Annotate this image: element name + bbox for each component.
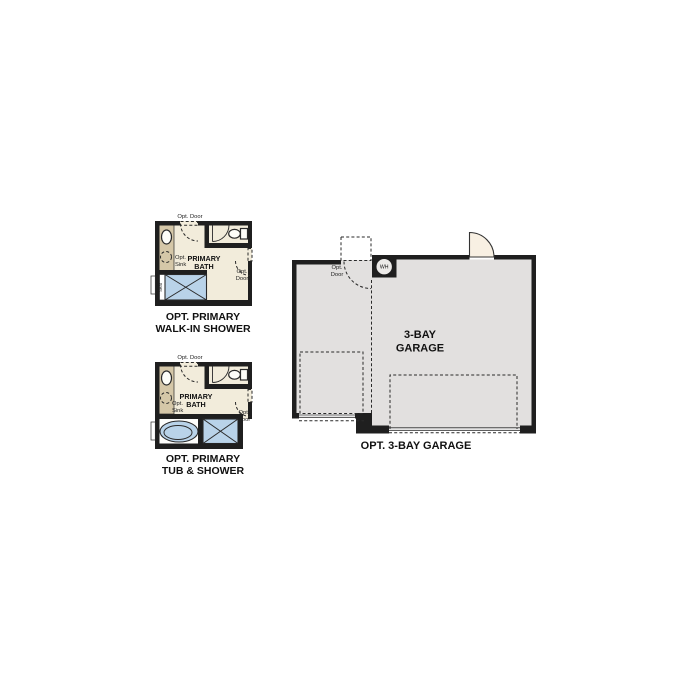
toilet-bowl-icon <box>229 370 241 379</box>
water-heater-label: WH <box>380 265 389 271</box>
opt-sink-label-line1: Opt. <box>172 401 183 407</box>
opt-door-right-label-line2: Door <box>238 417 251 423</box>
opt-sink-label-line2: Sink <box>172 408 183 414</box>
wall-niche <box>151 422 155 440</box>
optional-door-opening <box>341 237 371 261</box>
opt-door-right-label-line1: Opt. <box>239 410 250 416</box>
opt-door-label-line1: Opt. <box>332 265 343 271</box>
bay-garage-door <box>299 415 355 417</box>
plan-title: OPT. 3-BAY GARAGE <box>361 440 472 452</box>
wall-bay-bottom-left-stub <box>292 413 299 419</box>
wall-bay-top <box>292 260 341 265</box>
wall-right <box>532 255 537 434</box>
sink-icon <box>162 230 172 244</box>
opt-door-right-label-line2: Door <box>236 276 249 282</box>
opt-sink-label-line1: Opt. <box>175 255 186 261</box>
wall-left <box>155 221 160 306</box>
toilet-bowl-icon <box>229 229 241 238</box>
opt-door-right-label-line1: Opt. <box>237 269 248 275</box>
room-label-line1: 3-BAY <box>404 329 437 341</box>
opt-door-top-label: Opt. Door <box>177 355 202 361</box>
opt-sink-label-line2: Sink <box>175 262 186 268</box>
floor-plan-canvas: Opt. Door PRIMARY BATH Opt. Sink Opt. Do… <box>0 0 687 687</box>
wall-left <box>155 362 160 449</box>
room-label-line2: BATH <box>194 262 213 271</box>
entry-door-swing <box>470 233 495 258</box>
sink-icon <box>162 371 172 385</box>
plan-title-line1: OPT. PRIMARY <box>166 311 240 323</box>
seat-label: Seat <box>158 282 163 292</box>
wall-top-right <box>198 221 252 226</box>
wall-right-lower <box>248 261 252 306</box>
walk-in-shower-plan: Opt. Door PRIMARY BATH Opt. Sink Opt. Do… <box>148 206 260 338</box>
wall-bottom <box>155 444 243 450</box>
wall-main-bottom-left-stub <box>372 426 389 434</box>
tub-shower-plan: Opt. Door PRIMARY BATH Opt. Sink Opt. Do… <box>148 347 260 484</box>
toilet-tank-icon <box>241 370 248 381</box>
room-label-line2: GARAGE <box>396 343 444 355</box>
wall-bottom <box>155 300 252 306</box>
wall-left <box>292 260 297 419</box>
toilet-room-bottom-wall <box>205 243 253 248</box>
plan-title-line1: OPT. PRIMARY <box>166 453 240 465</box>
wall-step <box>356 413 372 434</box>
toilet-tank-icon <box>241 229 248 240</box>
opt-door-label-line2: Door <box>331 272 344 278</box>
wall-top-right <box>198 362 252 367</box>
main-garage-door <box>389 428 520 431</box>
room-label-line2: BATH <box>186 400 205 409</box>
wall-niche <box>151 276 155 294</box>
opt-door-top-label: Opt. Door <box>177 214 202 220</box>
garage-bay-floor <box>296 260 372 414</box>
wall-top-right-segment <box>494 255 536 260</box>
tub-shower-divider-wall <box>198 414 203 449</box>
garage-plan: WH Opt. Door 3-BAY GARAGE OPT. 3-BAY GAR… <box>288 228 542 456</box>
toilet-room-bottom-wall <box>205 384 253 389</box>
plan-title-line2: WALK-IN SHOWER <box>155 323 250 335</box>
plan-title-line2: TUB & SHOWER <box>162 465 245 477</box>
